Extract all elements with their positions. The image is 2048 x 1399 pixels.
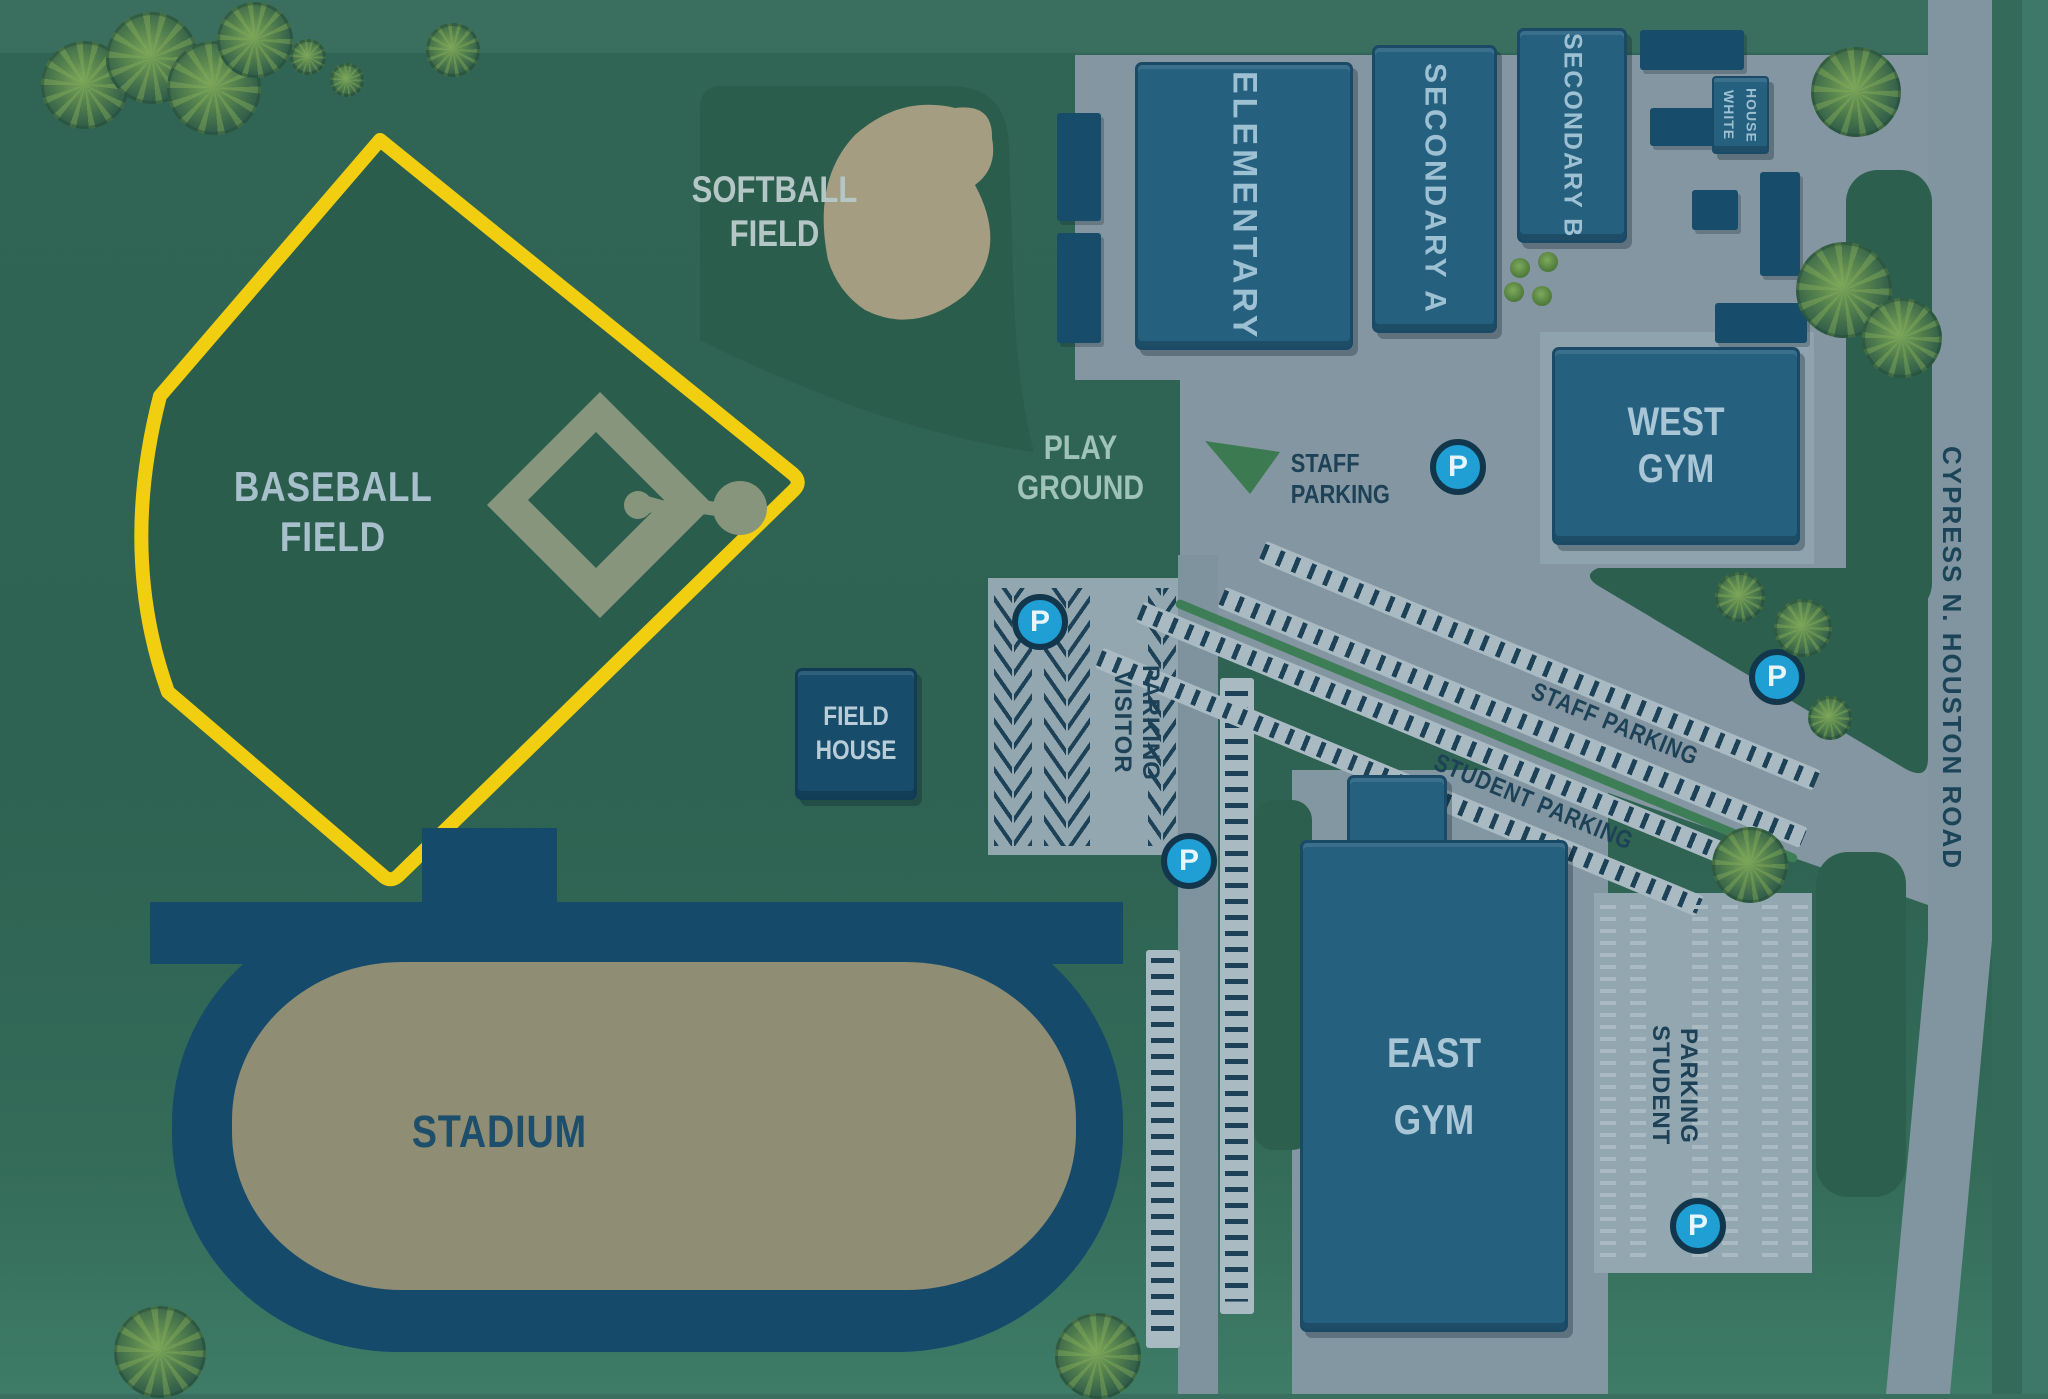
p-marker-student-lot[interactable]: P [1670,1198,1726,1254]
secondary-a-label: SECONDARY A [1418,63,1452,315]
p-letter: P [1688,1209,1708,1243]
p-letter: P [1448,450,1468,484]
field-house-label: FIELD HOUSE [806,700,906,768]
visitor-parking-label: VISITOR PARKING [1108,615,1164,830]
tree [290,39,326,75]
building-east-gym[interactable]: EAST GYM [1300,840,1568,1332]
student-lot-stripes-1 [1600,905,1646,1261]
building-field-house[interactable]: FIELD HOUSE [795,668,917,800]
building-white-house[interactable]: WHITE HOUSE [1712,76,1769,154]
stadium-text: STADIUM [412,1105,587,1158]
west-gym-label: WEST GYM [1611,399,1741,493]
tree [330,63,364,97]
tree [426,23,480,77]
baseball-field-text: BASEBALL FIELD [234,462,432,561]
p-marker-island[interactable]: P [1749,649,1805,705]
bush-3 [1504,282,1524,302]
staff-parking-sign: STAFF PARKING [1278,448,1438,509]
tree [1808,696,1852,740]
staff-parking-sign-text: STAFF PARKING [1291,448,1425,509]
student-parking-lot-label: STUDENT PARKING [1646,968,1702,1203]
east-gym-label: EAST GYM [1369,1019,1499,1153]
small-building-2[interactable] [1057,233,1101,343]
cypress-road-label: CYPRESS N. HOUSTON ROAD [1936,428,1967,888]
bush-4 [1532,286,1552,306]
p-marker-central-road[interactable]: P [1161,833,1217,889]
small-building-3[interactable] [1640,30,1744,70]
p-marker-staff-sign[interactable]: P [1430,439,1486,495]
p-letter: P [1030,605,1050,639]
tree [1055,1313,1141,1399]
campus-map: { "areas": { "baseball": {"label": "BASE… [0,0,2048,1394]
softball-field-text: SOFTBALL FIELD [688,168,860,255]
small-building-4[interactable] [1650,108,1720,146]
small-building-5[interactable] [1692,190,1738,230]
small-building-7[interactable] [1715,303,1807,343]
home-plate-circle [713,481,767,535]
roadside-parking-strip-left [1146,950,1180,1348]
p-marker-visitor[interactable]: P [1012,594,1068,650]
baseball-field-label: BASEBALL FIELD [215,462,435,561]
stadium-press-box [422,828,557,910]
east-gym-text: EAST GYM [1379,1019,1488,1153]
building-secondary-b[interactable]: SECONDARY B [1517,28,1627,243]
field-house-text: FIELD HOUSE [814,700,898,768]
median-strip-north [1846,170,1932,615]
white-house-label: WHITE HOUSE [1718,80,1764,150]
small-building-1[interactable] [1057,113,1101,221]
elementary-label: ELEMENTARY [1225,71,1264,341]
playground-label: PLAY GROUND [1003,428,1158,508]
tree [1774,599,1832,657]
west-gym-text: WEST GYM [1621,399,1730,493]
tree [1712,827,1788,903]
tree [1715,572,1765,622]
stadium-label: STADIUM [395,1105,595,1158]
building-secondary-a[interactable]: SECONDARY A [1372,45,1497,333]
road-shoulder-edge [2022,0,2048,1394]
secondary-b-label: SECONDARY B [1558,33,1587,238]
student-lot-stripes-3 [1762,905,1808,1261]
p-letter: P [1179,844,1199,878]
playground-text: PLAY GROUND [1015,428,1145,508]
building-elementary[interactable]: ELEMENTARY [1135,62,1353,350]
stadium-field [232,962,1076,1290]
tree [1811,47,1901,137]
p-letter: P [1767,660,1787,694]
tree [217,2,293,78]
bush-1 [1510,258,1530,278]
building-west-gym[interactable]: WEST GYM [1552,347,1800,545]
small-building-6[interactable] [1760,172,1800,276]
tree [1862,298,1942,378]
bush-2 [1538,252,1558,272]
tree [114,1306,206,1398]
roadside-parking-strip-right [1220,678,1254,1314]
softball-field-label: SOFTBALL FIELD [672,168,877,255]
